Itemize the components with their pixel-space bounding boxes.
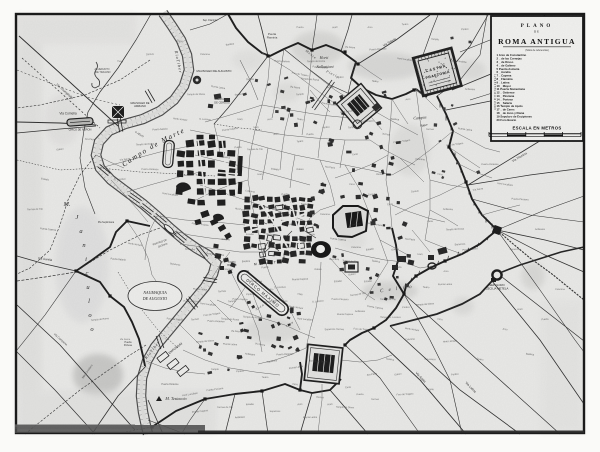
svg-text:Sep. Flaminio: Sep. Flaminio — [203, 19, 218, 22]
